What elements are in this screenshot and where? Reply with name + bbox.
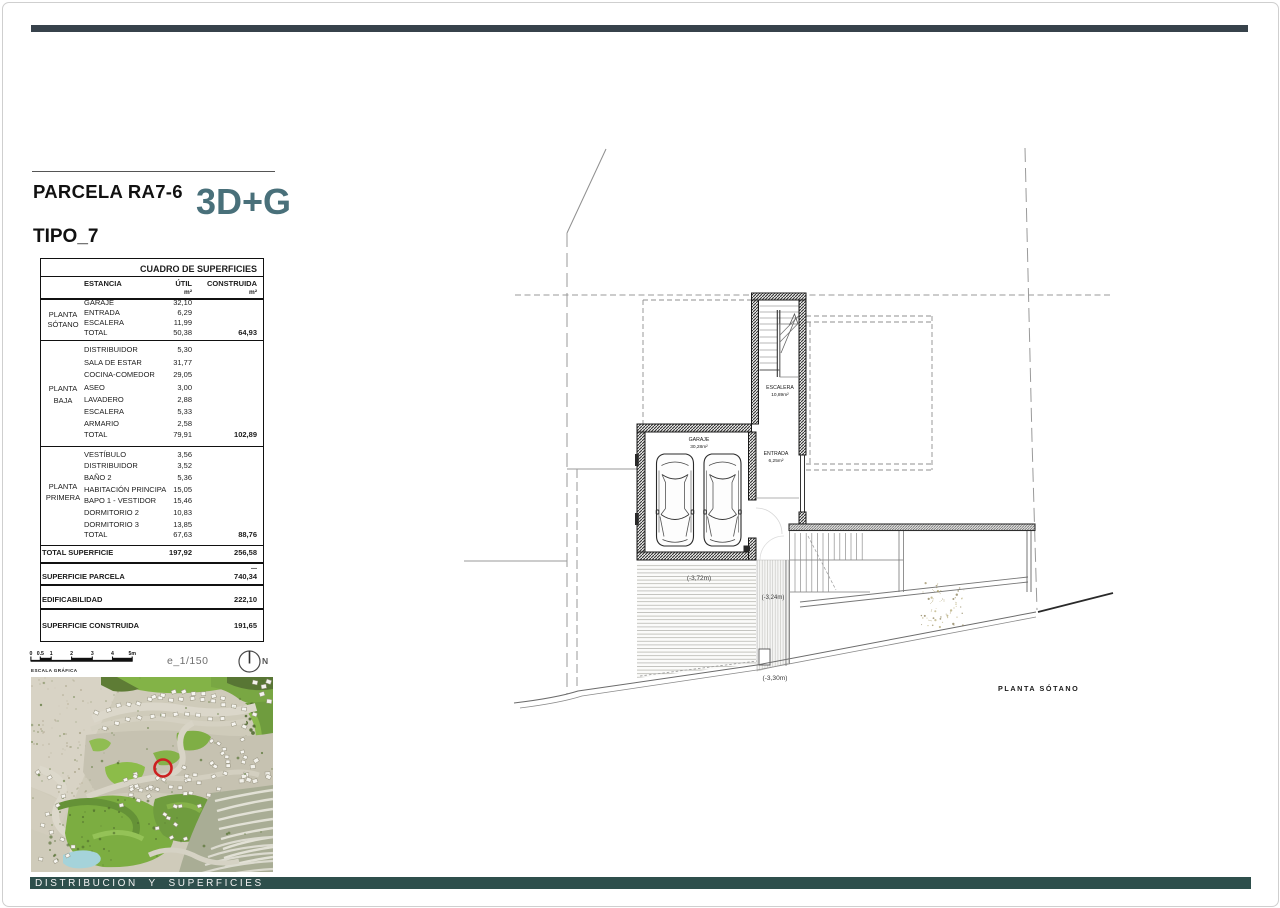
svg-text:6,25m²: 6,25m² (769, 458, 784, 464)
svg-text:(-3,72m): (-3,72m) (687, 575, 711, 582)
svg-text:PLANTA SÓTANO: PLANTA SÓTANO (998, 684, 1079, 693)
svg-text:(-3,24m): (-3,24m) (762, 595, 785, 601)
svg-text:ESCALERA: ESCALERA (766, 385, 794, 391)
svg-text:10,89m²: 10,89m² (771, 392, 789, 398)
svg-text:(-3,30m): (-3,30m) (763, 675, 788, 682)
svg-text:30,28m²: 30,28m² (690, 444, 708, 450)
svg-text:GARAJE: GARAJE (689, 437, 710, 443)
svg-text:ENTRADA: ENTRADA (764, 451, 789, 457)
